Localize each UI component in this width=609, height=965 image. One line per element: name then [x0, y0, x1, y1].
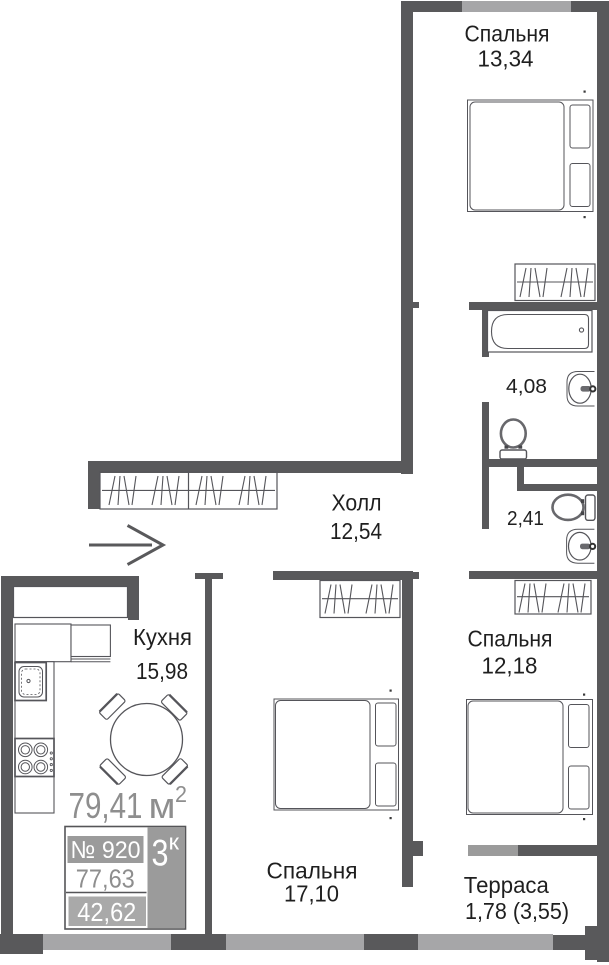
svg-text:м: м — [149, 785, 176, 826]
svg-text:№ 920: № 920 — [71, 837, 141, 864]
svg-text:12,18: 12,18 — [482, 653, 538, 679]
svg-text:13,34: 13,34 — [478, 46, 534, 72]
svg-text:42,62: 42,62 — [77, 897, 136, 927]
svg-text:17,10: 17,10 — [284, 881, 339, 907]
svg-text:Спальня: Спальня — [465, 21, 550, 47]
svg-text:3: 3 — [152, 833, 169, 874]
svg-text:Кухня: Кухня — [133, 624, 192, 650]
svg-text:1,78 (3,55): 1,78 (3,55) — [465, 898, 569, 924]
svg-text:Терраса: Терраса — [464, 872, 549, 898]
svg-text:к: к — [169, 830, 180, 855]
svg-text:79,41: 79,41 — [69, 785, 143, 826]
svg-text:15,98: 15,98 — [136, 658, 188, 684]
svg-text:Холл: Холл — [332, 490, 382, 516]
svg-text:4,08: 4,08 — [506, 375, 547, 398]
svg-text:2,41: 2,41 — [507, 507, 544, 530]
svg-text:Спальня: Спальня — [468, 626, 553, 652]
svg-text:2: 2 — [175, 781, 187, 807]
svg-text:12,54: 12,54 — [330, 518, 382, 544]
svg-text:77,63: 77,63 — [76, 866, 135, 894]
